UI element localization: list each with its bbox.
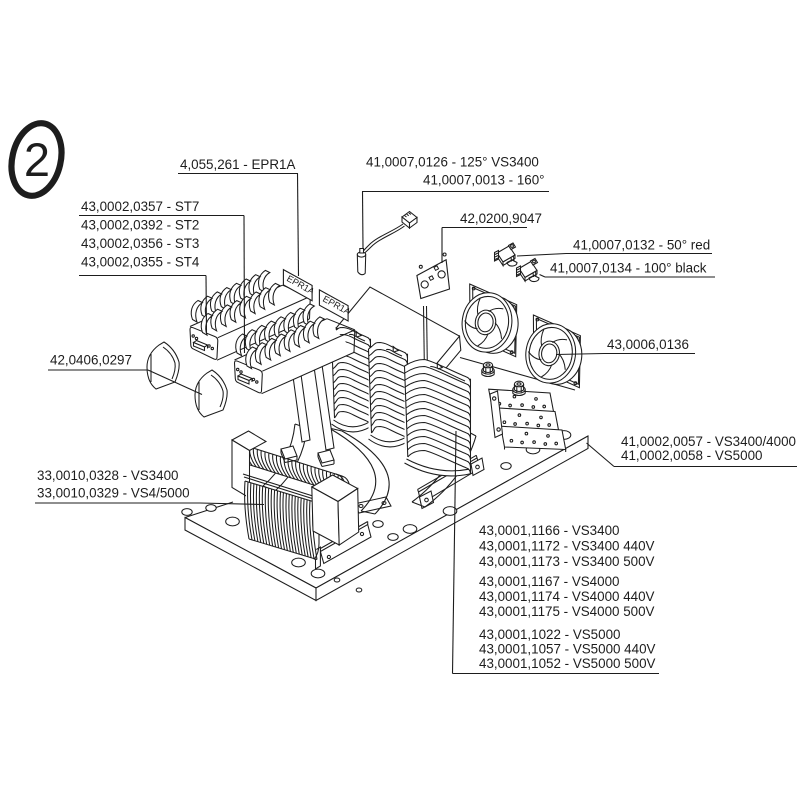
svg-text:43,0001,1052 - VS5000 500V: 43,0001,1052 - VS5000 500V [479, 656, 656, 671]
svg-text:43,0002,0392 - ST2: 43,0002,0392 - ST2 [81, 218, 199, 233]
svg-text:43,0002,0357 - ST7: 43,0002,0357 - ST7 [81, 199, 199, 214]
svg-text:43,0001,1167 - VS4000: 43,0001,1167 - VS4000 [479, 574, 619, 589]
svg-text:43,0001,1174 - VS4000 440V: 43,0001,1174 - VS4000 440V [479, 589, 655, 604]
svg-text:42,0406,0297: 42,0406,0297 [50, 353, 132, 368]
svg-text:43,0001,1057 - VS5000 440V: 43,0001,1057 - VS5000 440V [479, 642, 656, 657]
svg-text:43,0001,1173 - VS3400 500V: 43,0001,1173 - VS3400 500V [479, 554, 655, 569]
svg-text:43,0001,1175 - VS4000 500V: 43,0001,1175 - VS4000 500V [479, 604, 655, 619]
svg-text:41,0007,0132 - 50° red: 41,0007,0132 - 50° red [573, 238, 710, 253]
svg-text:43,0001,1172 - VS3400 440V: 43,0001,1172 - VS3400 440V [479, 539, 655, 554]
svg-text:41,0002,0057 - VS3400/4000: 41,0002,0057 - VS3400/4000 [621, 434, 796, 449]
svg-text:43,0002,0356 - ST3: 43,0002,0356 - ST3 [81, 236, 199, 251]
svg-text:33,0010,0329 - VS4/5000: 33,0010,0329 - VS4/5000 [37, 486, 190, 501]
svg-text:43,0001,1022 - VS5000: 43,0001,1022 - VS5000 [479, 627, 620, 642]
svg-text:43,0001,1166 - VS3400: 43,0001,1166 - VS3400 [479, 523, 619, 538]
svg-text:33,0010,0328 - VS3400: 33,0010,0328 - VS3400 [37, 468, 178, 483]
svg-text:42,0200,9047: 42,0200,9047 [460, 211, 542, 226]
svg-text:43,0002,0355 - ST4: 43,0002,0355 - ST4 [81, 255, 200, 270]
svg-text:43,0006,0136: 43,0006,0136 [607, 337, 689, 352]
svg-text:41,0002,0058 - VS5000: 41,0002,0058 - VS5000 [621, 448, 762, 463]
svg-text:41,0007,0013 - 160°: 41,0007,0013 - 160° [423, 173, 545, 188]
svg-text:2: 2 [24, 133, 50, 186]
svg-text:41,0007,0134 - 100° black: 41,0007,0134 - 100° black [550, 261, 707, 276]
svg-text:4,055,261 - EPR1A: 4,055,261 - EPR1A [180, 157, 295, 172]
svg-text:41,0007,0126 - 125° VS3400: 41,0007,0126 - 125° VS3400 [366, 155, 539, 170]
